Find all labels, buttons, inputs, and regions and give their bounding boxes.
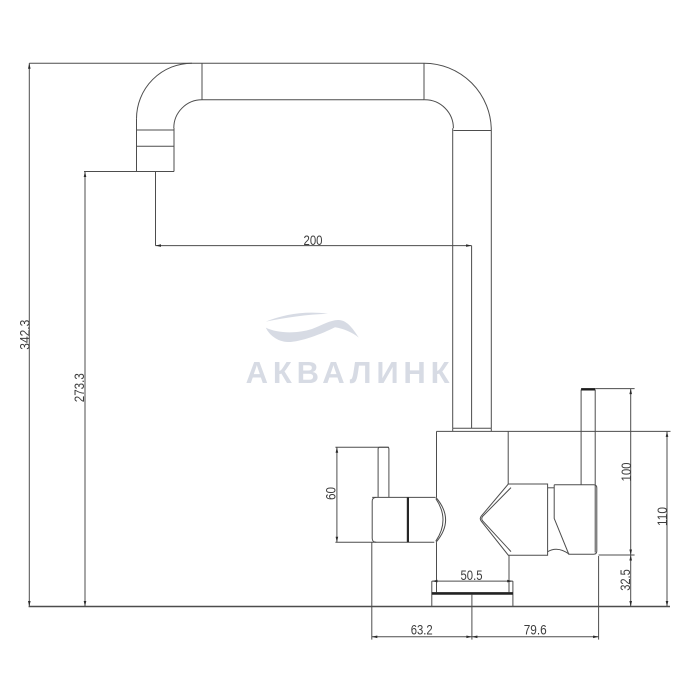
- svg-text:273.3: 273.3: [71, 373, 87, 402]
- svg-text:110: 110: [654, 507, 670, 526]
- svg-text:200: 200: [304, 232, 323, 248]
- svg-text:342.3: 342.3: [17, 320, 33, 350]
- svg-text:50.5: 50.5: [461, 567, 483, 583]
- svg-text:100: 100: [618, 462, 634, 481]
- svg-text:60: 60: [322, 487, 338, 500]
- svg-text:79.6: 79.6: [524, 622, 547, 638]
- svg-text:32.5: 32.5: [617, 569, 633, 591]
- svg-text:63.2: 63.2: [411, 622, 433, 638]
- svg-text:АКВАЛИНК: АКВАЛИНК: [246, 355, 455, 390]
